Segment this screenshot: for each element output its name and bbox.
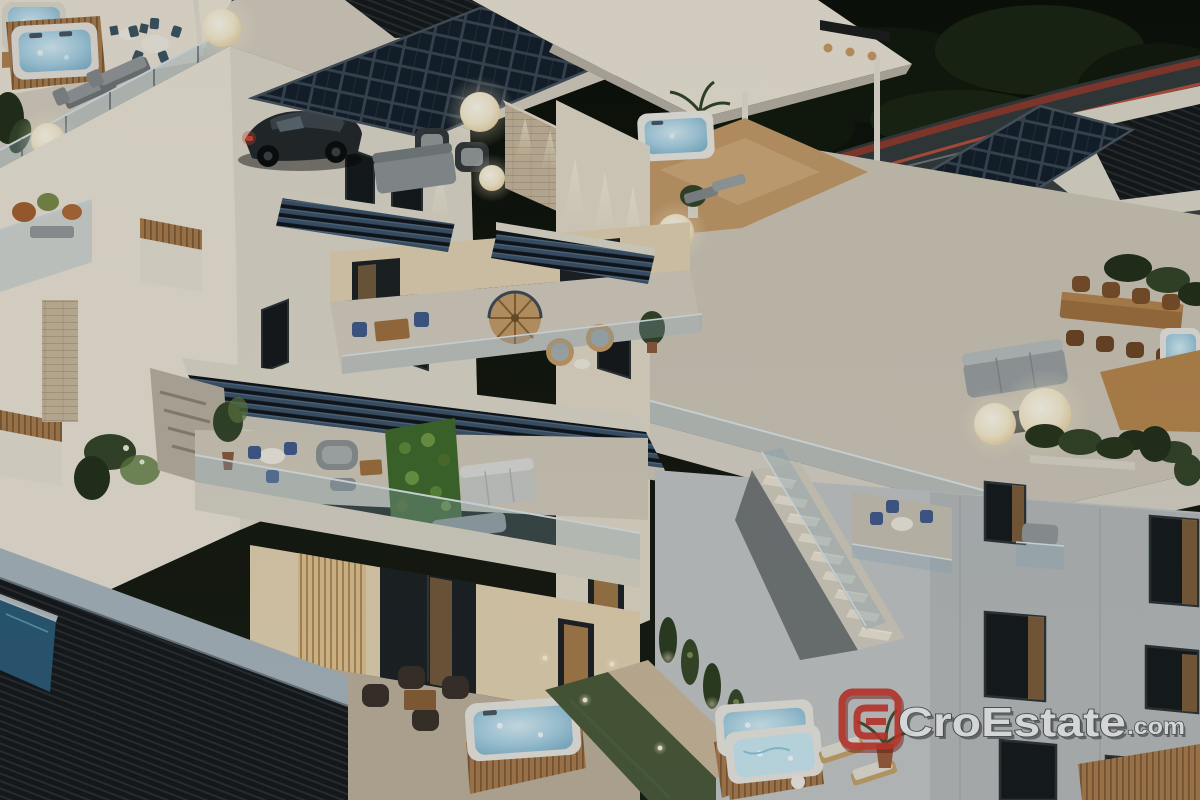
watermark-suffix: .com <box>1127 713 1185 739</box>
watermark-brand: CroEstate <box>898 699 1126 745</box>
property-render: CroEstate CroEstate .com .com <box>0 0 1200 800</box>
vignette <box>0 0 1200 800</box>
render-canvas: CroEstate CroEstate .com .com <box>0 0 1200 800</box>
